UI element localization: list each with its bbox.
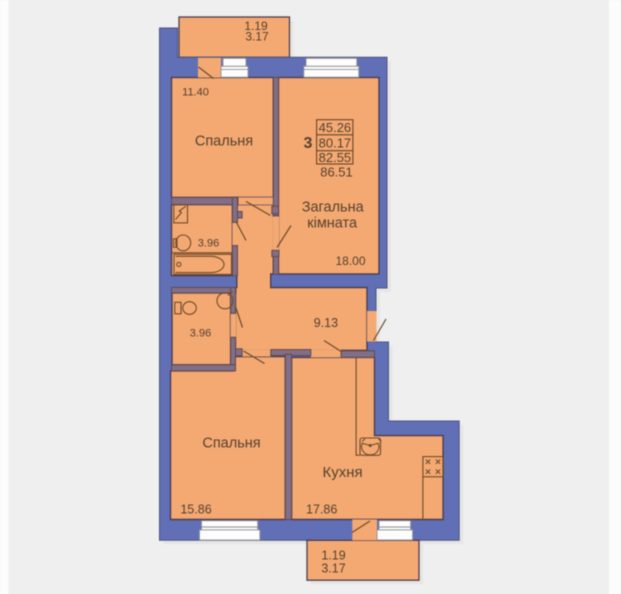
svg-text:11.40: 11.40 [182, 87, 209, 99]
svg-text:Загальна: Загальна [302, 200, 365, 216]
svg-text:3.96: 3.96 [198, 237, 219, 249]
svg-text:3: 3 [304, 135, 313, 152]
svg-text:3.17: 3.17 [321, 562, 345, 576]
svg-text:Спальня: Спальня [202, 436, 260, 452]
svg-text:кімната: кімната [307, 216, 358, 232]
svg-text:45.26: 45.26 [319, 120, 352, 135]
svg-text:15.86: 15.86 [180, 503, 211, 517]
svg-text:1.19: 1.19 [321, 549, 345, 563]
svg-text:80.17: 80.17 [319, 135, 352, 150]
svg-text:18.00: 18.00 [335, 254, 365, 268]
svg-text:3.96: 3.96 [190, 327, 211, 339]
svg-text:86.51: 86.51 [320, 164, 353, 179]
svg-text:Спальня: Спальня [195, 134, 253, 150]
svg-text:17.86: 17.86 [306, 503, 337, 517]
svg-text:82.55: 82.55 [319, 150, 352, 165]
svg-text:3.17: 3.17 [245, 29, 269, 43]
svg-text:9.13: 9.13 [314, 316, 338, 330]
svg-text:Кухня: Кухня [323, 464, 363, 481]
